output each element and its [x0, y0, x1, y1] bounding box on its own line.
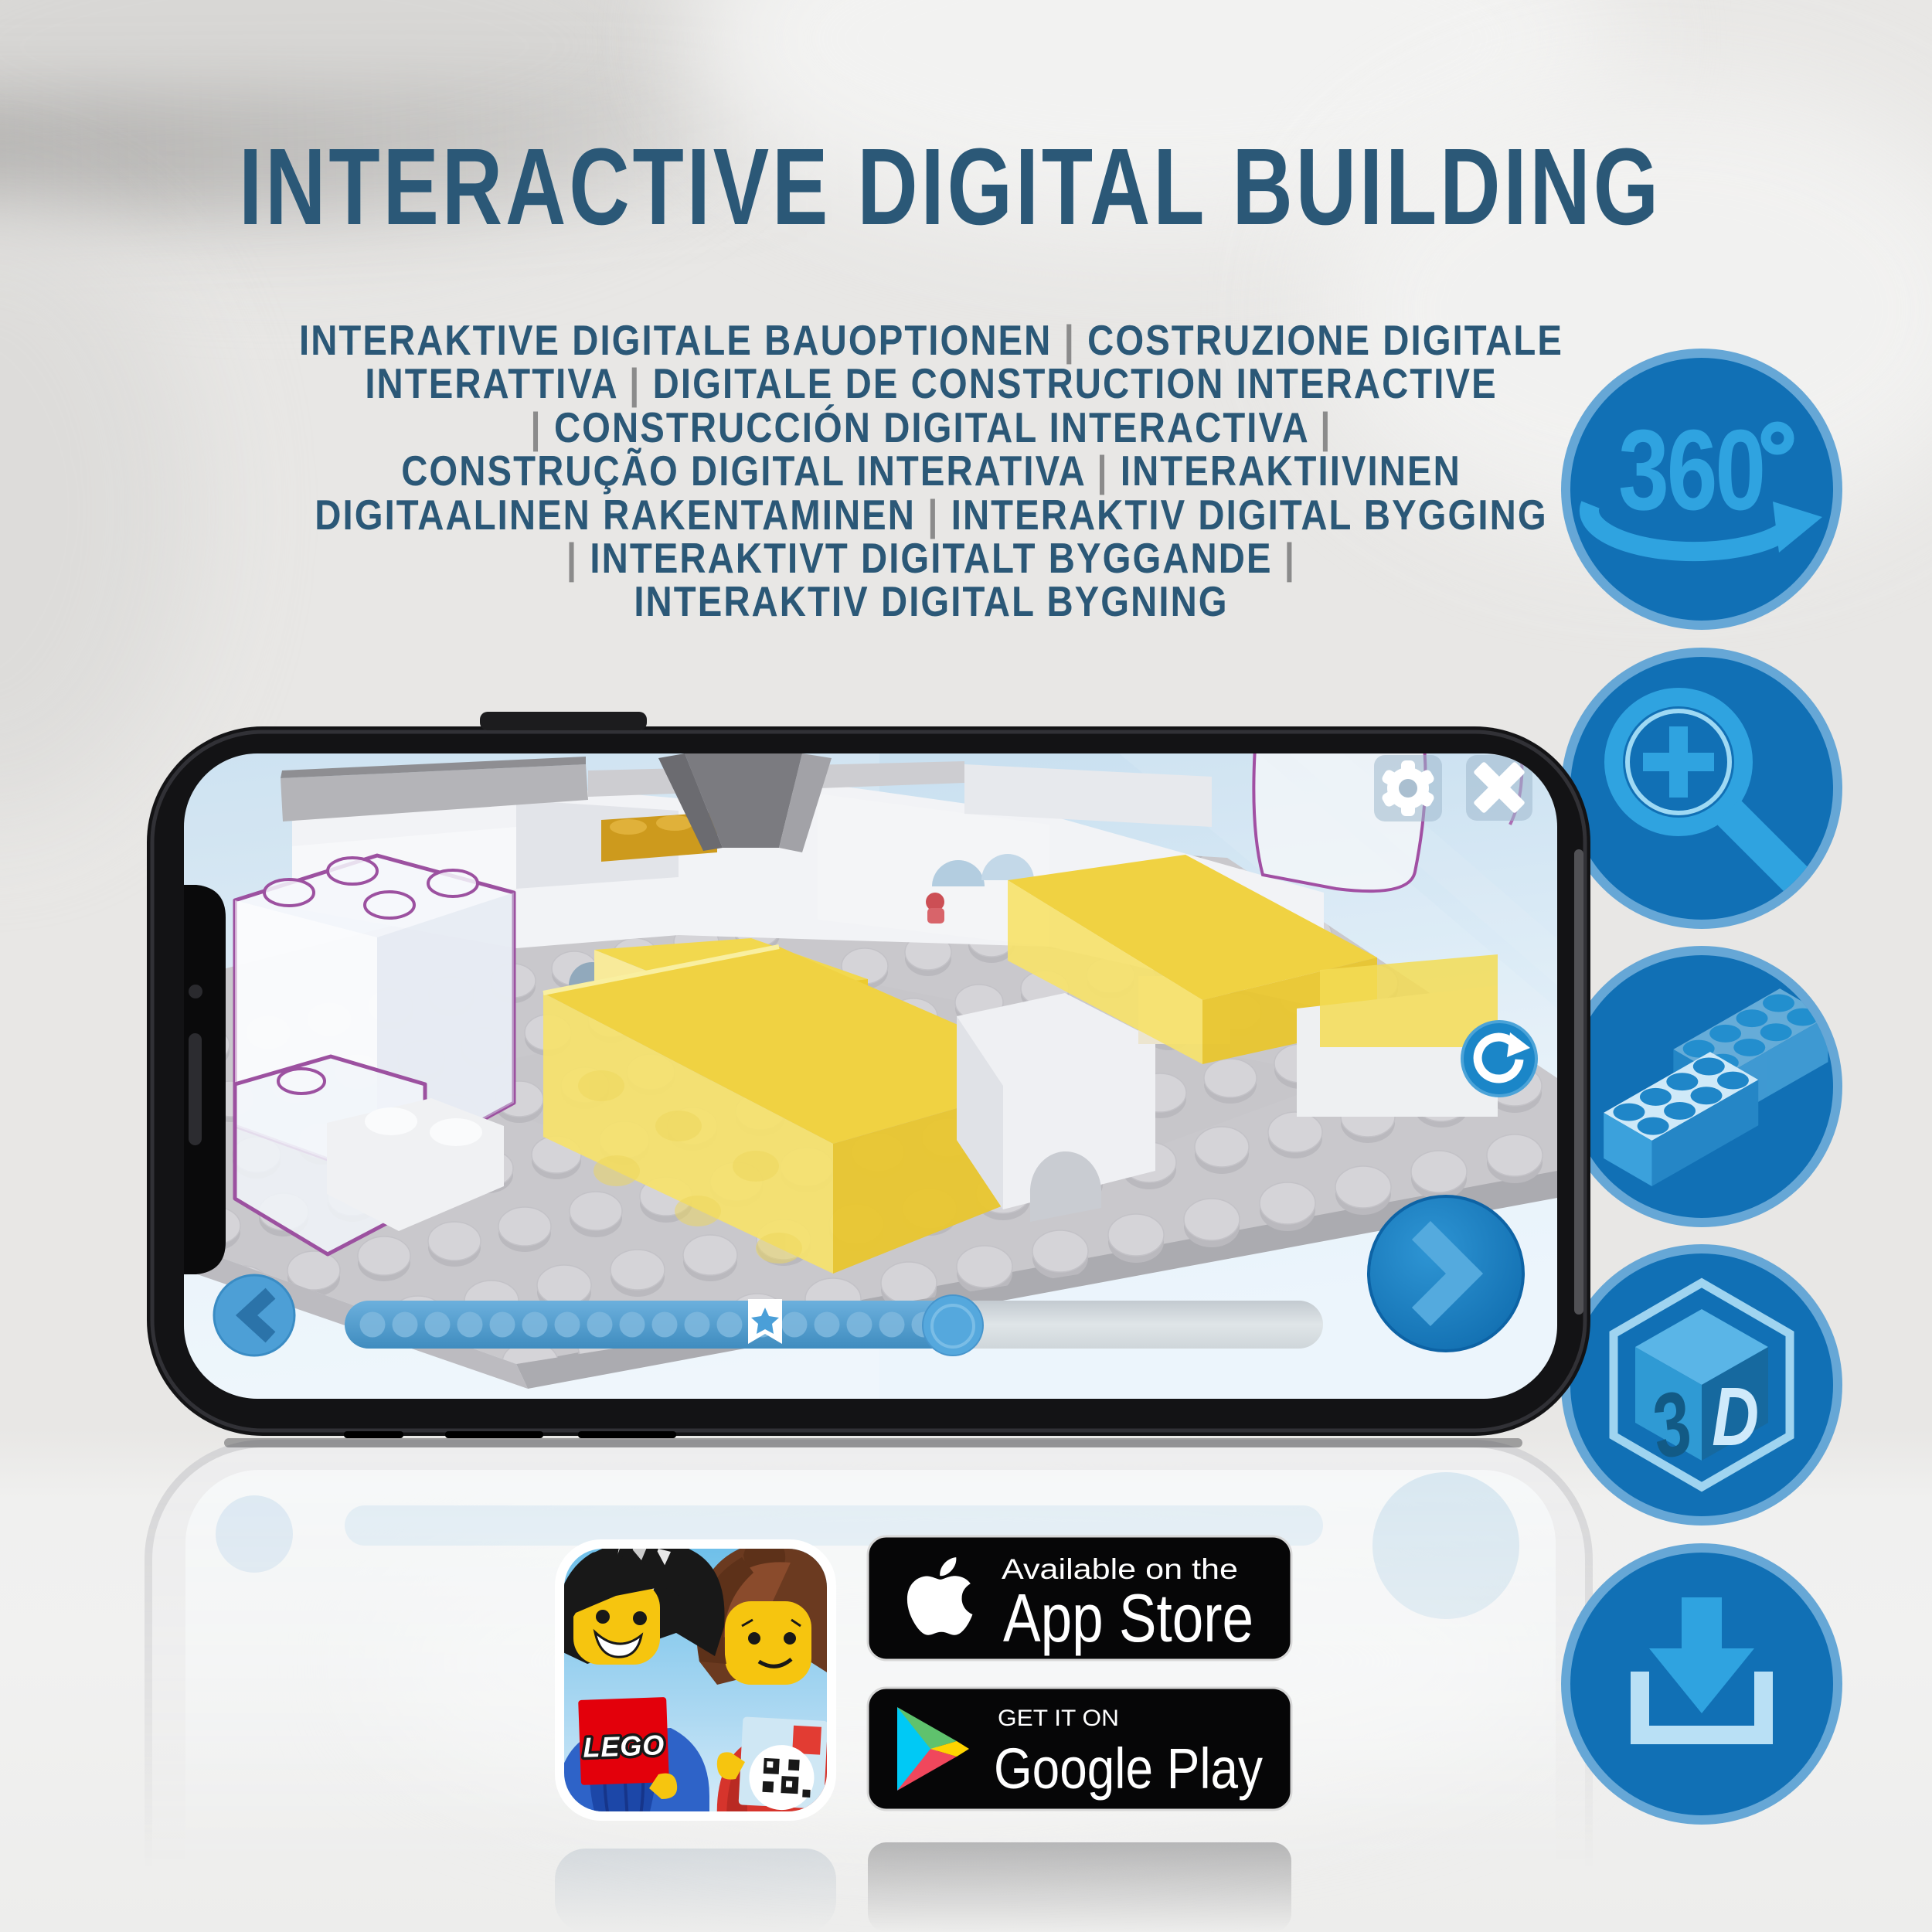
svg-text:App Store: App Store	[1003, 1580, 1253, 1656]
svg-text:360: 360	[1618, 406, 1764, 534]
svg-text:D: D	[1712, 1369, 1759, 1464]
svg-text:LEGO: LEGO	[583, 1729, 665, 1764]
svg-text:GET IT ON: GET IT ON	[998, 1706, 1119, 1731]
svg-text:Google Play: Google Play	[994, 1736, 1263, 1801]
